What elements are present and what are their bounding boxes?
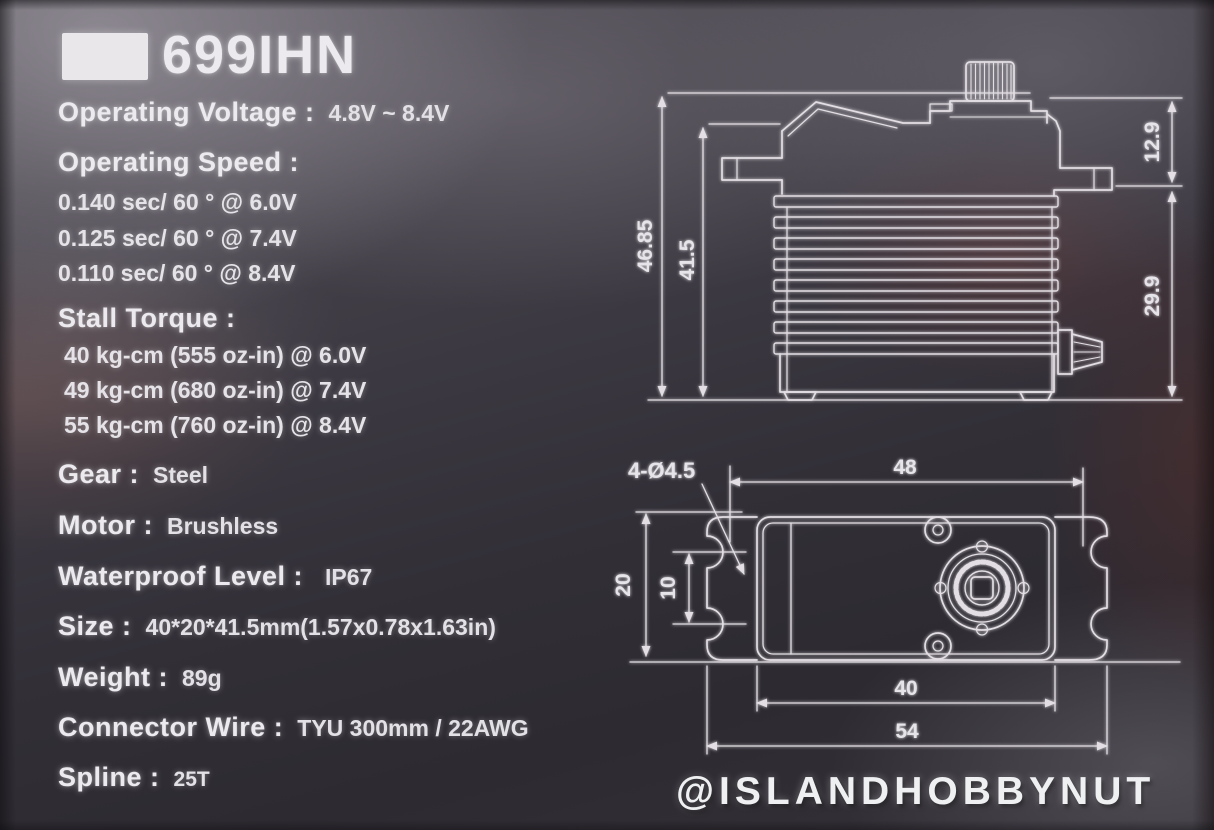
side-mount-tab-right [1054,168,1112,196]
servo-case-outline [782,102,1060,194]
heatsink-fins [774,196,1058,392]
dim-lower-section: 29.9 [1141,276,1164,317]
top-view-drawing: 4-Ø4.5 48 20 10 40 54 [612,456,1180,754]
top-mount-tab-left [707,517,757,660]
dim-case-height: 41.5 [676,239,699,280]
dim-flange-span: 54 [895,720,919,743]
wire-connector [1058,330,1102,374]
case-screw-holes [925,517,951,659]
dim-case-depth: 20 [612,573,635,596]
top-mount-tab-right [1055,517,1107,660]
spline-shaft [966,62,1014,101]
side-mount-tab-left [722,158,782,180]
servo-top-cap [930,101,1047,123]
spec-sheet-card: 699IHN Operating Voltage :4.8V ~ 8.4V Op… [0,0,1214,830]
dim-hole-span: 48 [893,456,917,479]
watermark-handle: @ISLANDHOBBYNUT [676,770,1196,814]
dim-hole-pitch: 10 [657,576,680,599]
case-bottom [780,354,1054,400]
dim-hole-note: 4-Ø4.5 [628,458,695,483]
top-view-dimensions [630,466,1180,754]
dim-upper-section: 12.9 [1141,122,1164,163]
dim-case-width: 40 [894,677,917,700]
side-view-drawing: 46.85 41.5 12.9 29.9 [634,62,1182,400]
technical-drawings: 46.85 41.5 12.9 29.9 [0,0,1214,830]
dim-overall-height: 46.85 [634,219,657,272]
output-spline-top [935,541,1029,635]
